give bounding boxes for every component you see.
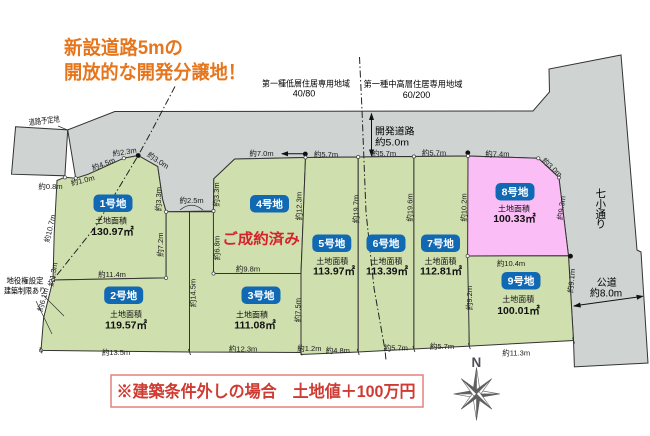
svg-text:約11.3m: 約11.3m: [502, 347, 530, 357]
svg-text:約5.7m: 約5.7m: [384, 343, 408, 353]
svg-text:112.81㎡: 112.81㎡: [420, 265, 463, 278]
svg-text:約19.6m: 約19.6m: [404, 193, 414, 221]
svg-text:約12.3m: 約12.3m: [229, 344, 257, 354]
svg-text:り: り: [595, 219, 606, 231]
svg-text:5号地: 5号地: [318, 237, 345, 250]
svg-text:土地面積: 土地面積: [371, 256, 403, 266]
svg-text:約13.5m: 約13.5m: [102, 347, 130, 357]
svg-text:土地面積: 土地面積: [502, 294, 534, 304]
svg-text:約7.2m: 約7.2m: [155, 233, 165, 257]
svg-text:地役権設定: 地役権設定: [7, 276, 44, 286]
svg-text:約5.7m: 約5.7m: [314, 149, 338, 159]
svg-text:第一種低層住居専用地域: 第一種低層住居専用地域: [262, 79, 350, 89]
svg-text:111.08㎡: 111.08㎡: [234, 319, 276, 332]
svg-text:約5.0m: 約5.0m: [375, 137, 409, 149]
svg-text:約6.8m: 約6.8m: [211, 236, 221, 260]
svg-text:約8.0m: 約8.0m: [590, 287, 622, 300]
svg-text:3号地: 3号地: [248, 289, 275, 302]
svg-text:約3.3m: 約3.3m: [153, 187, 163, 211]
svg-text:4号地: 4号地: [256, 198, 283, 211]
svg-text:130.97㎡: 130.97㎡: [91, 225, 134, 238]
svg-text:土地面積: 土地面積: [316, 256, 348, 266]
svg-text:約12.3m: 約12.3m: [294, 192, 304, 220]
svg-text:1号地: 1号地: [100, 197, 127, 210]
svg-text:土地面積: 土地面積: [425, 256, 457, 266]
svg-text:建築制限あり: 建築制限あり: [4, 286, 46, 296]
svg-text:約11.4m: 約11.4m: [98, 269, 126, 279]
svg-text:2号地: 2号地: [110, 289, 137, 302]
svg-text:100.01㎡: 100.01㎡: [497, 304, 540, 317]
svg-text:第一種中高層住居専用地域: 第一種中高層住居専用地域: [364, 79, 463, 89]
svg-text:約9.1m: 約9.1m: [565, 268, 577, 293]
svg-text:約10.2m: 約10.2m: [458, 193, 468, 221]
svg-text:約7.4m: 約7.4m: [485, 149, 509, 159]
svg-text:113.39㎡: 113.39㎡: [366, 265, 409, 278]
svg-text:約19.7m: 約19.7m: [351, 195, 361, 223]
svg-text:約10.4m: 約10.4m: [497, 258, 525, 268]
svg-text:113.97㎡: 113.97㎡: [313, 265, 356, 278]
svg-text:約14.5m: 約14.5m: [187, 279, 197, 307]
svg-text:7号地: 7号地: [427, 237, 454, 250]
svg-text:新設道路5mの: 新設道路5mの: [64, 36, 183, 59]
svg-text:約2.5m: 約2.5m: [180, 195, 204, 205]
svg-text:土地面積: 土地面積: [236, 310, 268, 320]
svg-text:開発道路: 開発道路: [375, 126, 415, 138]
svg-text:約4.8m: 約4.8m: [326, 345, 350, 355]
svg-text:約5.7m: 約5.7m: [372, 148, 396, 158]
svg-text:土地面積: 土地面積: [95, 216, 127, 226]
svg-text:9号地: 9号地: [508, 275, 535, 288]
svg-text:60/200: 60/200: [403, 90, 431, 100]
svg-text:約5.7m: 約5.7m: [430, 341, 454, 351]
svg-text:約5.7m: 約5.7m: [422, 148, 446, 158]
svg-text:※建築条件外しの場合 土地値＋100万円: ※建築条件外しの場合 土地値＋100万円: [117, 381, 416, 401]
svg-text:100.33㎡: 100.33㎡: [493, 212, 536, 225]
svg-text:公道: 公道: [597, 276, 617, 289]
svg-text:約0.8m: 約0.8m: [38, 181, 62, 191]
svg-text:土地面積: 土地面積: [498, 204, 530, 214]
svg-text:約7.5m: 約7.5m: [293, 298, 303, 322]
svg-text:約9.2m: 約9.2m: [464, 286, 474, 310]
svg-text:約9.8m: 約9.8m: [236, 264, 260, 274]
svg-text:開放的な開発分譲地！: 開放的な開発分譲地！: [64, 61, 246, 84]
svg-text:8号地: 8号地: [502, 186, 529, 199]
svg-text:6号地: 6号地: [373, 237, 400, 250]
svg-text:約7.0m: 約7.0m: [249, 148, 273, 158]
svg-text:約3.3m: 約3.3m: [211, 182, 221, 206]
svg-text:40/80: 40/80: [293, 89, 316, 99]
svg-text:119.57㎡: 119.57㎡: [105, 319, 148, 332]
svg-text:土地面積: 土地面積: [110, 309, 142, 319]
svg-text:ご成約済み: ご成約済み: [222, 230, 300, 248]
